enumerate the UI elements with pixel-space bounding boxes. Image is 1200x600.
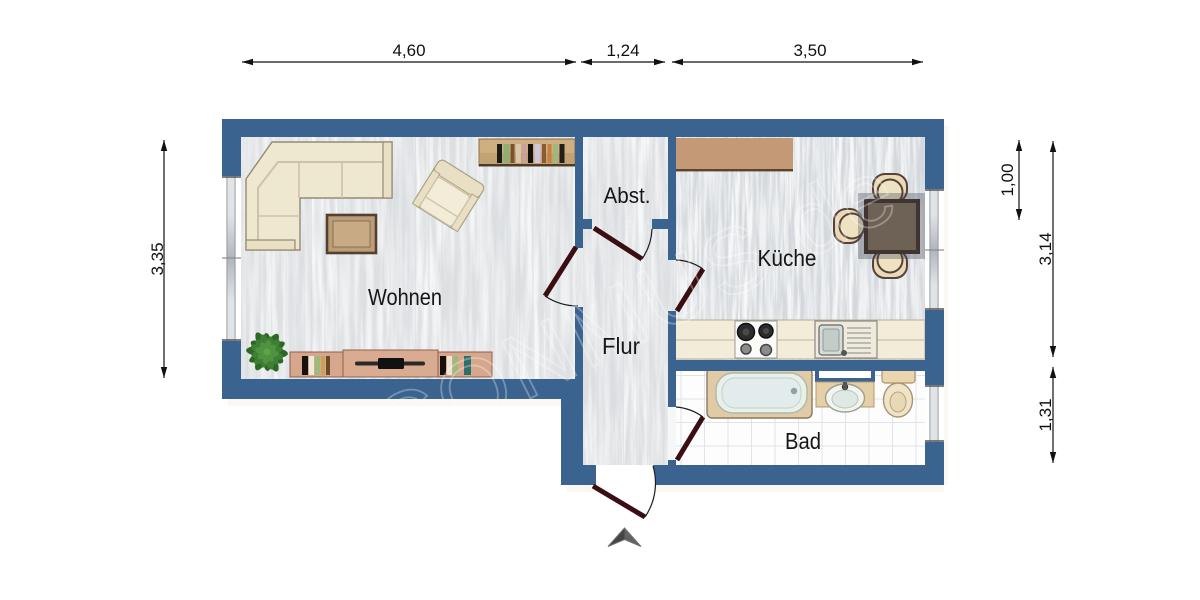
svg-text:1,00: 1,00 — [998, 163, 1017, 196]
svg-text:1,31: 1,31 — [1036, 398, 1055, 431]
svg-text:Wohnen: Wohnen — [368, 284, 442, 310]
svg-text:3,50: 3,50 — [793, 41, 826, 60]
svg-text:Küche: Küche — [758, 245, 817, 271]
svg-text:Flur: Flur — [602, 333, 640, 359]
svg-text:1,24: 1,24 — [606, 41, 639, 60]
svg-text:4,60: 4,60 — [392, 41, 425, 60]
svg-text:Bad: Bad — [785, 428, 821, 454]
svg-text:3,14: 3,14 — [1036, 232, 1055, 265]
svg-text:Abst.: Abst. — [604, 183, 651, 208]
svg-text:3,35: 3,35 — [148, 242, 167, 275]
